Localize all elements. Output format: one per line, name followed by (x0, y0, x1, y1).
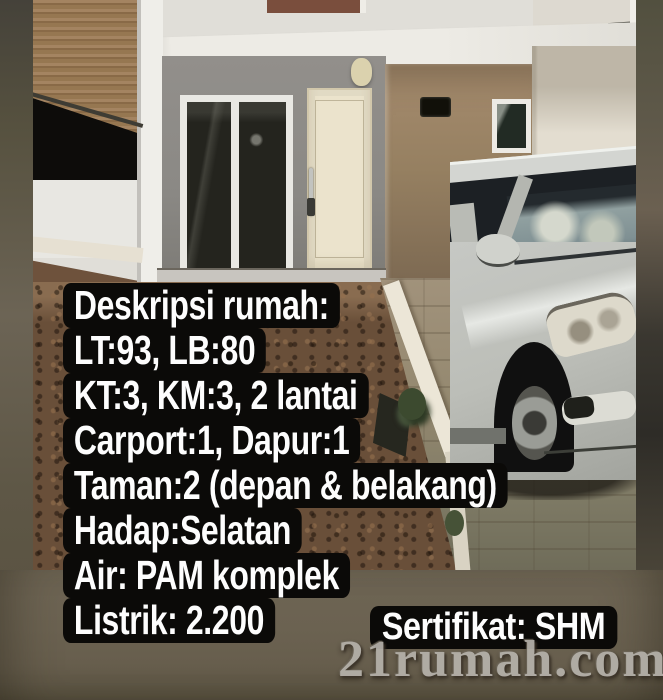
listing-image: Deskripsi rumah: LT:93, LB:80 KT:3, KM:3… (0, 0, 663, 700)
description-line: Carport:1, Dapur:1 (63, 418, 360, 463)
description-overlay: Deskripsi rumah: LT:93, LB:80 KT:3, KM:3… (63, 283, 609, 643)
small-window (492, 99, 531, 153)
description-line: Air: PAM komplek (63, 553, 350, 598)
glass-door-mullion (231, 100, 239, 276)
front-door-panel (315, 100, 364, 258)
description-line: LT:93, LB:80 (63, 328, 266, 373)
description-line: Taman:2 (depan & belakang) (63, 463, 508, 508)
car-side-mirror (476, 234, 520, 267)
site-watermark: 21rumah.com (338, 630, 663, 689)
balcony-door (267, 0, 366, 13)
description-line: Hadap:Selatan (63, 508, 302, 553)
door-lock (307, 198, 315, 216)
description-line: KT:3, KM:3, 2 lantai (63, 373, 368, 418)
description-line: Listrik: 2.200 (63, 598, 275, 643)
house-number-plate (420, 97, 451, 117)
description-line: Deskripsi rumah: (63, 283, 340, 328)
wall-lamp (351, 58, 372, 86)
car-door-top (450, 203, 478, 247)
